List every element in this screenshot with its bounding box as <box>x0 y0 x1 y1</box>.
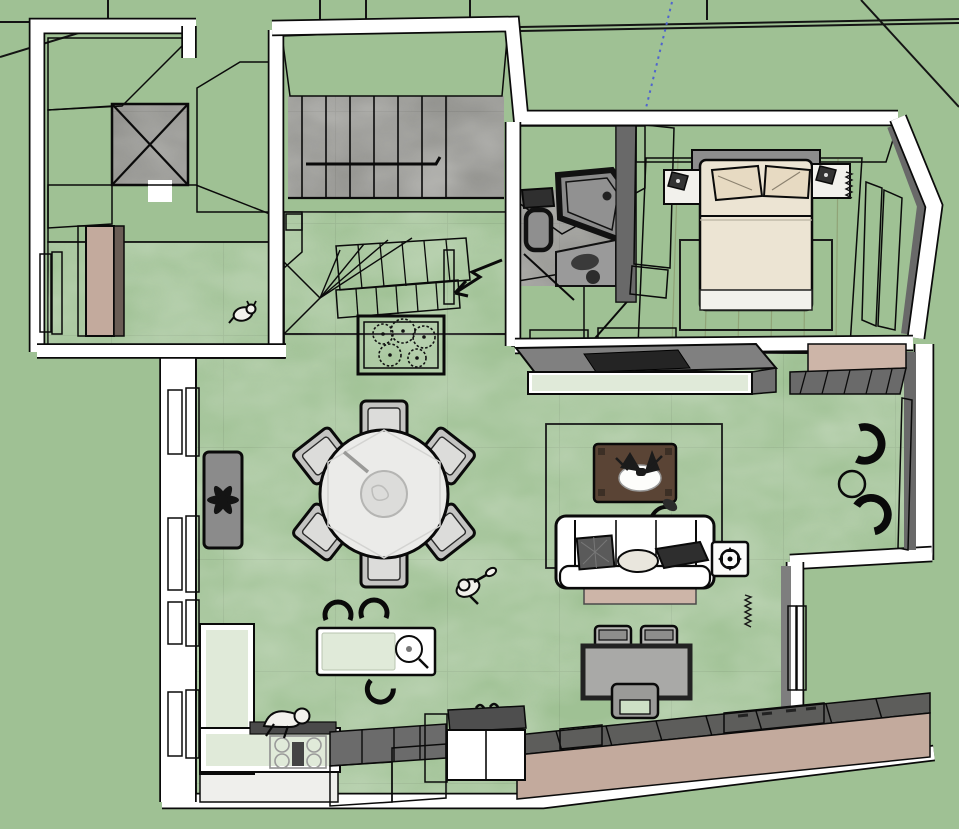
coffee-table[interactable] <box>594 444 676 502</box>
tv[interactable] <box>584 350 690 372</box>
cushion-white <box>618 550 658 572</box>
table-centerpiece <box>361 471 407 517</box>
sofa[interactable] <box>556 516 714 588</box>
side-table[interactable] <box>712 542 748 576</box>
cad-viewport[interactable] <box>0 0 959 829</box>
right-sideboard[interactable] <box>790 344 906 394</box>
pillow-left <box>712 166 762 200</box>
shower-handle[interactable] <box>603 192 612 201</box>
nightstand-right[interactable] <box>812 164 850 198</box>
shaft-door-gap <box>148 180 172 202</box>
kitchen-island[interactable] <box>317 628 435 675</box>
radiator[interactable] <box>204 452 242 548</box>
floorplan-canvas[interactable] <box>0 0 959 829</box>
toilet[interactable] <box>522 188 554 250</box>
double-bed[interactable] <box>692 150 820 310</box>
tv-console[interactable] <box>516 344 776 394</box>
nightstand-left[interactable] <box>664 170 700 204</box>
pillow-right <box>764 166 810 198</box>
bed-foot-throw <box>700 290 812 310</box>
desk-chair-3[interactable] <box>612 684 658 718</box>
cushion-gray <box>577 535 615 569</box>
